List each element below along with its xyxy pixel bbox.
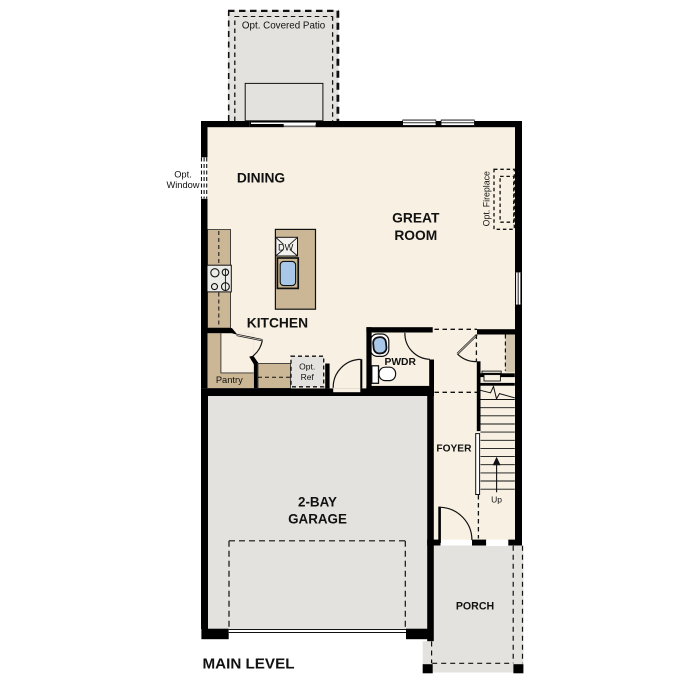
svg-text:Window: Window <box>166 180 199 190</box>
svg-text:GREAT: GREAT <box>392 211 440 226</box>
svg-text:DW: DW <box>278 243 294 253</box>
svg-text:FOYER: FOYER <box>436 444 472 455</box>
svg-text:Opt. Covered Patio: Opt. Covered Patio <box>242 21 326 32</box>
svg-text:KITCHEN: KITCHEN <box>247 316 308 331</box>
svg-text:2-BAY: 2-BAY <box>298 494 337 509</box>
svg-text:Opt.: Opt. <box>174 170 192 180</box>
svg-text:PORCH: PORCH <box>456 600 494 612</box>
svg-text:PWDR: PWDR <box>384 357 416 368</box>
svg-text:Pantry: Pantry <box>216 375 243 385</box>
svg-text:ROOM: ROOM <box>394 228 437 243</box>
svg-text:Up: Up <box>491 495 502 505</box>
svg-text:DINING: DINING <box>237 170 285 185</box>
svg-text:MAIN LEVEL: MAIN LEVEL <box>203 656 295 673</box>
svg-text:Ref: Ref <box>301 372 315 382</box>
svg-text:Opt. Fireplace: Opt. Fireplace <box>482 171 492 226</box>
svg-text:GARAGE: GARAGE <box>288 512 347 527</box>
svg-text:Opt.: Opt. <box>299 362 315 372</box>
